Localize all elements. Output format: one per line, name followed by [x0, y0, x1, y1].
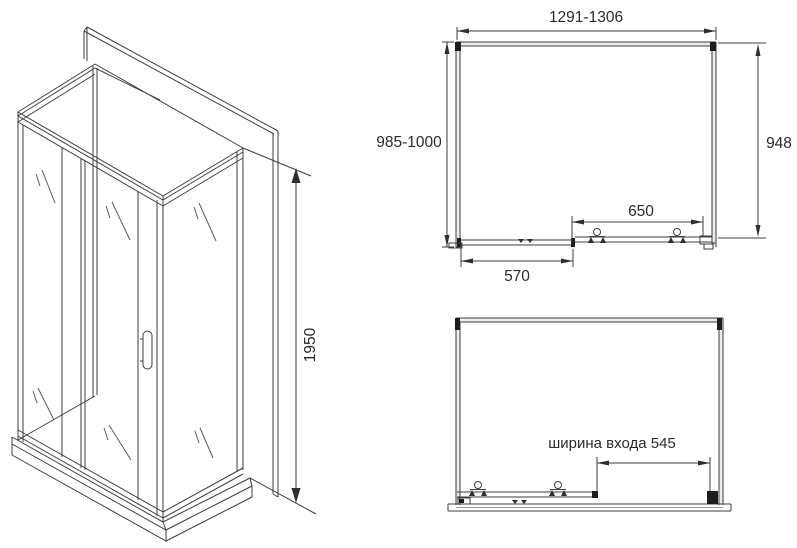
plan-bottom-walls	[455, 318, 723, 505]
plan-top-door-track	[449, 229, 713, 253]
plan-top-width-dimension: 1291-1306	[457, 9, 716, 40]
iso-glass-marks	[33, 170, 216, 460]
right-depth-dimension-label: 948	[766, 135, 792, 152]
left-depth-dimension-label: 985-1000	[376, 134, 442, 151]
plan-top-door-panel-dimension: 570	[461, 249, 573, 285]
width-dimension-label: 1291-1306	[549, 9, 623, 26]
iso-wall-profiles	[18, 66, 243, 522]
plan-top-right-depth-dimension: 948	[718, 43, 792, 238]
plan-bottom-entrance-dimension: ширина входа 545	[548, 435, 710, 492]
iso-top-frame	[18, 64, 243, 206]
roller-glyph	[469, 482, 487, 497]
plan-top-left-depth-dimension: 985-1000	[376, 42, 454, 247]
roller-glyph	[549, 482, 567, 497]
plan-top-view: 1291-1306 985-1000 948 650 5	[376, 9, 792, 285]
door-panel-dimension-label: 570	[504, 268, 530, 285]
iso-height-dimension: 1950	[243, 148, 319, 514]
plan-top-walls	[455, 42, 716, 247]
iso-door-handle	[140, 331, 152, 369]
iso-view: 1950	[12, 27, 319, 541]
plan-bottom-door-track	[448, 482, 731, 512]
roller-glyph	[668, 229, 686, 244]
plan-bottom-view: ширина входа 545	[448, 318, 731, 511]
technical-drawing-page: 1950	[0, 0, 797, 548]
roller-glyph	[588, 229, 606, 244]
entrance-width-dimension-label: ширина входа 545	[548, 435, 676, 452]
shower-enclosure-drawing: 1950	[0, 0, 797, 548]
height-dimension-label: 1950	[302, 327, 319, 362]
iso-back-panel	[84, 27, 278, 497]
opening-dimension-label: 650	[628, 203, 654, 220]
